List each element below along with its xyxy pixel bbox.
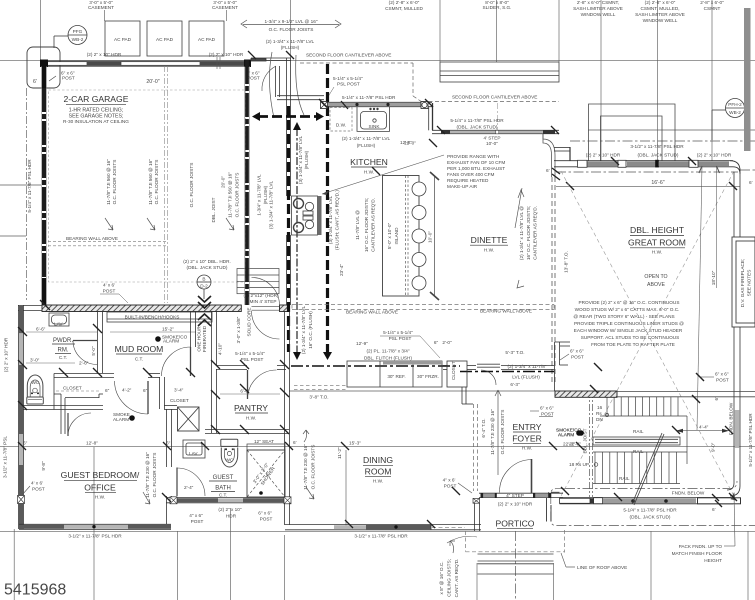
svg-text:POST: POST <box>444 484 457 489</box>
svg-text:(DBL. JACK STUD): (DBL. JACK STUD) <box>187 265 228 270</box>
svg-text:FANS OVER 400 CFM: FANS OVER 400 CFM <box>447 172 495 177</box>
svg-text:BUILT-IN/BENCH/HOOKS: BUILT-IN/BENCH/HOOKS <box>125 315 180 320</box>
svg-text:ABOVE: ABOVE <box>647 282 665 288</box>
svg-text:PSL POST: PSL POST <box>337 82 360 87</box>
svg-text:ALARM: ALARM <box>113 417 129 422</box>
svg-text:SOLID CORE: SOLID CORE <box>247 308 252 337</box>
svg-text:6" x 6": 6" x 6" <box>258 511 272 516</box>
svg-text:H.W.: H.W. <box>373 479 383 484</box>
svg-text:DN: DN <box>596 417 603 422</box>
svg-text:(2) 1-3/4" x 11-7/8" LVL: (2) 1-3/4" x 11-7/8" LVL <box>342 136 391 141</box>
svg-text:PACK FNDN. UP TO: PACK FNDN. UP TO <box>679 544 723 549</box>
svg-text:FOYER: FOYER <box>512 434 542 444</box>
svg-text:(2) 2" x 10" DBL. HDR.: (2) 2" x 10" DBL. HDR. <box>183 259 231 264</box>
svg-text:WC: WC <box>226 458 234 463</box>
svg-text:POST: POST <box>260 517 273 522</box>
svg-text:16" O.C. FLOOR JOISTS;: 16" O.C. FLOOR JOISTS; <box>526 206 531 260</box>
svg-text:BEARING WALL ABOVE: BEARING WALL ABOVE <box>346 310 398 315</box>
svg-text:O.C. FLOOR JOISTS: O.C. FLOOR JOISTS <box>269 27 314 32</box>
svg-text:CLOSET: CLOSET <box>170 398 189 403</box>
svg-text:9'-0": 9'-0" <box>711 442 716 452</box>
svg-text:3'-0" x 1-3/8": 3'-0" x 1-3/8" <box>236 316 241 343</box>
svg-text:GUEST BEDROOM/: GUEST BEDROOM/ <box>61 470 140 480</box>
svg-text:6": 6" <box>434 340 439 345</box>
svg-text:REQUIRE HEATED: REQUIRE HEATED <box>447 178 489 183</box>
svg-text:GREAT ROOM: GREAT ROOM <box>628 238 686 248</box>
svg-text:PROVIDE (2) 2" x 6" @ 16" O.C.: PROVIDE (2) 2" x 6" @ 16" O.C. CONTINUOU… <box>579 300 680 305</box>
svg-text:5-1/4" x 5-1/4": 5-1/4" x 5-1/4" <box>333 76 363 81</box>
svg-text:3-1/2" x 11-7/8" PSL: 3-1/2" x 11-7/8" PSL <box>3 436 8 478</box>
svg-text:O.C. FLOOR JOISTS: O.C. FLOOR JOISTS <box>152 453 157 498</box>
svg-text:(2) 2" x 10": (2) 2" x 10" <box>218 507 241 512</box>
svg-text:BATH: BATH <box>215 486 231 492</box>
svg-text:PWDR.: PWDR. <box>53 338 73 344</box>
svg-text:DBL. FLITCH (FLUSH): DBL. FLITCH (FLUSH) <box>364 356 412 361</box>
svg-text:6': 6' <box>749 180 753 185</box>
svg-text:SINK: SINK <box>369 124 381 129</box>
svg-text:16'-6": 16'-6" <box>651 180 664 186</box>
svg-text:3'-0": 3'-0" <box>30 358 40 363</box>
svg-text:CLOSET: CLOSET <box>63 386 82 391</box>
svg-text:12'-8": 12'-8" <box>86 441 98 446</box>
svg-text:(2) 1-3/4" x 11-7/8" LVL: (2) 1-3/4" x 11-7/8" LVL <box>301 305 306 354</box>
svg-text:16" O.C. (FLUSH): 16" O.C. (FLUSH) <box>308 311 313 349</box>
svg-text:ENTRY: ENTRY <box>513 422 542 432</box>
svg-text:6" x 6": 6" x 6" <box>715 372 729 377</box>
svg-text:6': 6' <box>293 440 297 445</box>
svg-text:C.T.: C.T. <box>219 493 227 498</box>
svg-text:(2) 1-3/4" x 11-7/8" LVL: (2) 1-3/4" x 11-7/8" LVL <box>266 39 315 44</box>
svg-text:MUD ROOM: MUD ROOM <box>115 344 164 354</box>
svg-text:5-1/4" x 11-7/8" PSL HDR: 5-1/4" x 11-7/8" PSL HDR <box>450 118 504 123</box>
svg-text:PER 1,000 BTU. EXHAUST: PER 1,000 BTU. EXHAUST <box>447 166 505 171</box>
svg-text:16" O.C. FLOOR JOISTS;: 16" O.C. FLOOR JOISTS; <box>364 198 369 252</box>
svg-text:4'-4": 4'-4" <box>699 425 709 430</box>
svg-text:WB-2: WB-2 <box>72 37 84 42</box>
svg-text:AC PAD: AC PAD <box>114 37 132 42</box>
svg-text:BEARING WALL ABOVE: BEARING WALL ABOVE <box>66 236 118 241</box>
svg-text:30" FRZR.: 30" FRZR. <box>417 374 439 379</box>
svg-text:LAV: LAV <box>54 322 63 327</box>
svg-text:O.C. FLOOR JOISTS: O.C. FLOOR JOISTS <box>154 160 159 205</box>
svg-text:(2) PL. 11-7/8" x 3/4": (2) PL. 11-7/8" x 3/4" <box>366 349 409 354</box>
svg-text:11-7/8" TJI 230 @ 16": 11-7/8" TJI 230 @ 16" <box>303 444 308 490</box>
svg-text:4" x 6": 4" x 6" <box>189 513 203 518</box>
svg-text:HDR: HDR <box>226 514 237 519</box>
svg-text:6" x 6": 6" x 6" <box>540 406 554 411</box>
svg-text:POST: POST <box>541 412 554 417</box>
svg-text:B: B <box>202 277 205 282</box>
svg-text:PORTICO: PORTICO <box>496 519 535 529</box>
svg-text:POST: POST <box>103 289 116 294</box>
svg-text:5'-3" T.O.: 5'-3" T.O. <box>505 350 524 355</box>
svg-text:OFFICE: OFFICE <box>84 483 116 493</box>
svg-text:(2) 2'-8" x 6'-0": (2) 2'-8" x 6'-0" <box>645 0 676 5</box>
svg-text:23'-4": 23'-4" <box>339 264 344 276</box>
svg-text:6'-3": 6'-3" <box>510 382 520 387</box>
svg-text:3-1/2" x 11-7/8" PSL HDR: 3-1/2" x 11-7/8" PSL HDR <box>68 534 122 539</box>
svg-text:H.W.: H.W. <box>484 248 494 253</box>
svg-text:4'-2": 4'-2" <box>122 388 132 393</box>
svg-text:RM.: RM. <box>58 348 69 354</box>
svg-text:LINE OF ROOF ABOVE: LINE OF ROOF ABOVE <box>577 565 627 570</box>
svg-text:CSMNT: CSMNT <box>704 6 721 11</box>
svg-text:C.T.: C.T. <box>135 357 143 362</box>
svg-text:(DBL. JACK STUD): (DBL. JACK STUD) <box>638 153 679 158</box>
svg-text:6': 6' <box>546 168 550 173</box>
svg-text:CSMNT, MULLED: CSMNT, MULLED <box>385 6 423 11</box>
svg-text:ISLAND: ISLAND <box>394 227 399 245</box>
svg-text:WINDOW WELL: WINDOW WELL <box>643 18 678 23</box>
svg-text:3-1/2" x 11-7/8" PSL HDR: 3-1/2" x 11-7/8" PSL HDR <box>354 534 408 539</box>
svg-text:ALARM: ALARM <box>163 339 179 344</box>
svg-text:AC PAD: AC PAD <box>198 37 216 42</box>
svg-text:WINDOW WELL: WINDOW WELL <box>581 12 616 17</box>
svg-text:(FLUSH): (FLUSH) <box>281 45 300 50</box>
svg-text:12" SEAT: 12" SEAT <box>254 439 274 444</box>
svg-text:11'-2": 11'-2" <box>337 447 342 459</box>
svg-text:6'-4" T.O.: 6'-4" T.O. <box>481 418 486 437</box>
svg-text:MIN 4' STEP: MIN 4' STEP <box>250 299 277 304</box>
svg-text:2'-8" x 6'-0": 2'-8" x 6'-0" <box>700 0 724 5</box>
svg-text:11-7/8" TJI 560 @ 16": 11-7/8" TJI 560 @ 16" <box>148 159 153 205</box>
svg-text:11-7/8" TJI 230 @ 16": 11-7/8" TJI 230 @ 16" <box>145 452 150 498</box>
svg-text:(DBL. JACK STUD): (DBL. JACK STUD) <box>630 515 671 520</box>
svg-text:DBL. HEIGHT: DBL. HEIGHT <box>630 225 685 235</box>
svg-text:H.W.: H.W. <box>246 416 256 421</box>
svg-text:@ REAR (TWO STORY 6" WALL) - S: @ REAR (TWO STORY 6" WALL) - SEE PLANS <box>573 314 674 319</box>
svg-text:3-1/2" x 11-7/8" PSL HDR: 3-1/2" x 11-7/8" PSL HDR <box>630 144 684 149</box>
svg-text:2-CAR GARAGE: 2-CAR GARAGE <box>64 94 129 104</box>
svg-text:10'-0": 10'-0" <box>428 231 433 243</box>
svg-text:WOOD STUDS W/ 2" x 6" CATTS MA: WOOD STUDS W/ 2" x 6" CATTS MAX. 6'-0" O… <box>575 307 680 312</box>
svg-text:13'-8" T.O.: 13'-8" T.O. <box>564 251 569 273</box>
svg-text:4" x 6': 4" x 6' <box>443 478 456 483</box>
svg-text:MAKE-UP AIR: MAKE-UP AIR <box>447 184 478 189</box>
svg-text:11-7/8" TJI 230 @ 16": 11-7/8" TJI 230 @ 16" <box>490 409 495 455</box>
svg-text:6': 6' <box>712 507 716 512</box>
svg-text:(3) 1-3/4" x 11-7/8" LVL: (3) 1-3/4" x 11-7/8" LVL <box>328 195 333 244</box>
svg-text:5-1/4" x 11-7/8" PSL HDR: 5-1/4" x 11-7/8" PSL HDR <box>623 508 677 513</box>
svg-text:6": 6" <box>166 441 171 446</box>
svg-text:(2) 2" x 10" HDR: (2) 2" x 10" HDR <box>87 52 122 57</box>
svg-text:30" REF.: 30" REF. <box>387 374 405 379</box>
svg-text:12'-9": 12'-9" <box>356 341 368 346</box>
svg-text:C.T.: C.T. <box>59 355 67 360</box>
svg-text:(3) 1-3/4" x 11-7/8" LVL: (3) 1-3/4" x 11-7/8" LVL <box>298 135 303 184</box>
svg-text:Rs: Rs <box>596 411 602 416</box>
svg-text:5'-0": 5'-0" <box>91 346 96 356</box>
svg-text:CASEMENT: CASEMENT <box>88 5 114 10</box>
svg-text:WB-2: WB-2 <box>729 110 741 115</box>
svg-text:FIRERATED: FIRERATED <box>202 325 207 352</box>
svg-text:CANTILEVER AS REQ'D.: CANTILEVER AS REQ'D. <box>533 206 538 260</box>
svg-text:OPEN TO: OPEN TO <box>644 274 667 280</box>
svg-text:EACH WINDOW W/ SINGLE JACK STU: EACH WINDOW W/ SINGLE JACK STUD HEADER <box>574 328 683 333</box>
svg-text:LAV: LAV <box>189 451 198 456</box>
svg-text:(2) 1-3/4" x 11-7/8": (2) 1-3/4" x 11-7/8" <box>508 364 547 369</box>
svg-text:SECOND FLOOR CANTILEVER ABOVE: SECOND FLOOR CANTILEVER ABOVE <box>452 95 537 100</box>
svg-text:RAIL: RAIL <box>619 476 630 481</box>
svg-text:POST: POST <box>62 76 75 81</box>
svg-text:PFH-2: PFH-2 <box>728 102 742 107</box>
svg-text:1-3/4" x 11-7/8" LVL: 1-3/4" x 11-7/8" LVL <box>257 174 262 216</box>
svg-text:1-3/4" x 9-1/2" LVL @ 16": 1-3/4" x 9-1/2" LVL @ 16" <box>264 19 317 24</box>
svg-text:D-2: D-2 <box>200 284 208 289</box>
svg-text:9'-8": 9'-8" <box>41 461 46 471</box>
svg-text:PROVIDE RANGE WITH: PROVIDE RANGE WITH <box>447 154 499 159</box>
svg-text:SASH LIMITER ABOVE: SASH LIMITER ABOVE <box>635 12 685 17</box>
svg-text:H.W.: H.W. <box>364 170 374 175</box>
svg-text:20'-0": 20'-0" <box>146 79 159 85</box>
svg-text:5-1/4" x 11-7/8" PSL HDR: 5-1/4" x 11-7/8" PSL HDR <box>27 159 32 213</box>
svg-text:POST: POST <box>32 487 45 492</box>
svg-text:6'-6": 6'-6" <box>36 327 46 332</box>
svg-text:(FLUSH): (FLUSH) <box>263 185 268 204</box>
svg-text:4' STEP: 4' STEP <box>483 136 500 141</box>
svg-text:6": 6" <box>105 388 110 393</box>
svg-text:(DBL. JACK STUD): (DBL. JACK STUD) <box>457 125 498 130</box>
svg-text:(3) 1-3/4" x 11-7/8" LVL: (3) 1-3/4" x 11-7/8" LVL <box>269 180 274 229</box>
svg-text:11-7/8" TJI 560 @ 16": 11-7/8" TJI 560 @ 16" <box>106 159 111 205</box>
svg-text:FNDN. BELOW: FNDN. BELOW <box>672 491 705 496</box>
svg-text:2'-6": 2'-6" <box>79 361 89 366</box>
svg-text:3'-8" T.O.: 3'-8" T.O. <box>309 395 328 400</box>
svg-text:CSMNT, MULLED,: CSMNT, MULLED, <box>640 6 679 11</box>
svg-text:5-1/2" x 11-7/8" PSL HDR: 5-1/2" x 11-7/8" PSL HDR <box>748 413 753 467</box>
svg-text:CEILING JOISTS;: CEILING JOISTS; <box>447 559 452 597</box>
svg-text:H.W.: H.W. <box>652 250 662 255</box>
svg-text:6": 6" <box>23 441 28 446</box>
svg-text:SEE NOTES: SEE NOTES <box>747 270 752 297</box>
svg-text:4'-10": 4'-10" <box>218 343 223 355</box>
svg-text:MATCH FINISH FLOOR: MATCH FINISH FLOOR <box>672 551 723 556</box>
svg-text:FNDN. BELOW: FNDN. BELOW <box>729 402 734 435</box>
svg-text:KITCHEN: KITCHEN <box>350 157 388 167</box>
svg-text:x 8" @ 16" O.C.: x 8" @ 16" O.C. <box>439 561 444 594</box>
svg-text:H.W.: H.W. <box>95 495 105 500</box>
svg-text:5-1/4" x 5-1/4": 5-1/4" x 5-1/4" <box>235 351 265 356</box>
svg-text:6': 6' <box>33 79 37 85</box>
svg-text:(2) 1-3/4" x 11-7/8" LVL @: (2) 1-3/4" x 11-7/8" LVL @ <box>519 206 524 260</box>
svg-text:ROOM: ROOM <box>365 467 392 477</box>
svg-text:(2) 2'-8" x 6'-0": (2) 2'-8" x 6'-0" <box>389 0 420 5</box>
svg-text:6': 6' <box>714 397 719 401</box>
svg-text:CAN'T. AS REQ'D.: CAN'T. AS REQ'D. <box>454 559 459 598</box>
svg-text:SUPPORT. ACL STUDS TO BE CONTI: SUPPORT. ACL STUDS TO BE CONTINUOUS <box>581 335 680 340</box>
svg-text:10'-0": 10'-0" <box>486 141 498 146</box>
svg-text:(2) 2" x 10" HDR: (2) 2" x 10" HDR <box>586 153 621 158</box>
svg-text:5415968: 5415968 <box>4 582 66 599</box>
svg-text:POST: POST <box>247 76 260 81</box>
svg-text:PSL POST: PSL POST <box>241 357 264 362</box>
svg-text:WC: WC <box>32 380 40 385</box>
svg-text:DBL. JOIST: DBL. JOIST <box>211 197 216 222</box>
svg-text:O.C. FLOOR JOISTS: O.C. FLOOR JOISTS <box>189 163 194 208</box>
svg-text:R-30 INSULATION AT CEILING: R-30 INSULATION AT CEILING <box>63 119 129 124</box>
svg-text:5-1/4" x 5-1/4": 5-1/4" x 5-1/4" <box>383 330 413 335</box>
svg-text:(2) 2" x 10" HDR: (2) 2" x 10" HDR <box>498 501 533 506</box>
svg-text:PSL POST: PSL POST <box>389 336 412 341</box>
svg-text:22'-0": 22'-0" <box>569 442 581 447</box>
svg-text:PANTRY: PANTRY <box>234 403 268 413</box>
svg-text:3'-4": 3'-4" <box>174 388 184 393</box>
svg-text:RAIL: RAIL <box>633 449 644 454</box>
svg-text:POST: POST <box>716 378 729 383</box>
svg-text:11-7/8" LVL @: 11-7/8" LVL @ <box>355 210 360 240</box>
svg-text:5'-0" x 10'-0": 5'-0" x 10'-0" <box>387 223 392 250</box>
svg-text:18 Rs UP: 18 Rs UP <box>569 462 589 467</box>
svg-text:15'-3": 15'-3" <box>349 441 361 446</box>
svg-text:16: 16 <box>597 405 603 410</box>
svg-text:15'-2": 15'-2" <box>162 327 174 332</box>
svg-text:(FLUSH): (FLUSH) <box>357 143 376 148</box>
svg-text:POST: POST <box>571 355 584 360</box>
svg-text:PROVIDE TRIPLE CONTINUOUS LINE: PROVIDE TRIPLE CONTINUOUS LINER STUDS @ <box>574 321 684 326</box>
svg-text:18'-10": 18'-10" <box>711 270 716 285</box>
svg-text:O.C. FLOOR JOISTS: O.C. FLOOR JOISTS <box>112 160 117 205</box>
svg-text:CASEMENT: CASEMENT <box>212 5 238 10</box>
svg-text:SECOND FLOOR CANTILEVER ABOVE: SECOND FLOOR CANTILEVER ABOVE <box>306 53 391 58</box>
svg-text:O.C. FLOOR JOISTS: O.C. FLOOR JOISTS <box>235 173 240 218</box>
svg-text:(FLUSH; CAN'T, AS REQ'D.): (FLUSH; CAN'T, AS REQ'D.) <box>335 190 340 250</box>
svg-text:H.W.: H.W. <box>522 446 532 451</box>
svg-text:2'-8" x 6'-0" CSMNT,: 2'-8" x 6'-0" CSMNT, <box>577 0 619 5</box>
svg-text:EXHAUST FAN OF 10 CFM: EXHAUST FAN OF 10 CFM <box>447 160 505 165</box>
svg-text:DINING: DINING <box>363 455 393 465</box>
svg-text:DINETTE: DINETTE <box>471 235 508 245</box>
svg-text:LVL (FLUSH): LVL (FLUSH) <box>512 375 540 380</box>
svg-text:D.W.: D.W. <box>336 123 346 128</box>
svg-text:D.V. GAS FIREPLACE;: D.V. GAS FIREPLACE; <box>740 259 745 308</box>
svg-text:(2) 2" x 10" HDR: (2) 2" x 10" HDR <box>697 153 732 158</box>
svg-text:O.C. FLOOR JOISTS: O.C. FLOOR JOISTS <box>311 445 316 490</box>
svg-text:20'-0": 20'-0" <box>221 176 226 188</box>
svg-text:4' x 6': 4' x 6' <box>31 481 43 486</box>
svg-text:ALARM: ALARM <box>558 432 574 437</box>
svg-text:CANTILEVER AS REQ'D.: CANTILEVER AS REQ'D. <box>371 198 376 252</box>
svg-text:(2) 2" x 10" HDR: (2) 2" x 10" HDR <box>209 52 244 57</box>
svg-text:2'-0": 2'-0" <box>442 340 452 345</box>
svg-text:11-7/8" TJI 560 @ 16": 11-7/8" TJI 560 @ 16" <box>228 172 233 218</box>
svg-text:SLIDER, S.G.: SLIDER, S.G. <box>483 5 512 10</box>
svg-text:ONE HOUR: ONE HOUR <box>197 326 202 352</box>
svg-text:12'-0": 12'-0" <box>400 140 412 145</box>
svg-text:6" x 6": 6" x 6" <box>570 349 584 354</box>
svg-text:O.C. FLOOR JOISTS: O.C. FLOOR JOISTS <box>500 410 505 455</box>
svg-text:FROM TOE PLATE TO RAFTER PLATE: FROM TOE PLATE TO RAFTER PLATE <box>591 342 675 347</box>
svg-text:PFG: PFG <box>73 29 83 34</box>
svg-text:GUEST: GUEST <box>213 475 234 481</box>
svg-text:6": 6" <box>143 388 148 393</box>
svg-text:SASH LIMITER ABOVE: SASH LIMITER ABOVE <box>573 6 623 11</box>
svg-text:(2) 2" x 10" HDR: (2) 2" x 10" HDR <box>4 337 9 372</box>
svg-text:2'-4": 2'-4" <box>184 485 194 490</box>
svg-text:HEIGHT: HEIGHT <box>704 558 722 563</box>
svg-text:5-1/4" x 11-7/8" PSL HDR: 5-1/4" x 11-7/8" PSL HDR <box>342 95 396 100</box>
svg-text:CLOSET: CLOSET <box>451 361 456 380</box>
svg-text:RAIL: RAIL <box>633 429 644 434</box>
svg-text:4" STEP: 4" STEP <box>506 493 524 498</box>
svg-text:4' x 6': 4' x 6' <box>103 283 115 288</box>
svg-text:(FLUSH): (FLUSH) <box>304 150 309 169</box>
svg-text:POST: POST <box>191 519 204 524</box>
svg-text:BEARING WALL ABOVE: BEARING WALL ABOVE <box>480 309 532 314</box>
svg-text:AC PAD: AC PAD <box>156 37 174 42</box>
